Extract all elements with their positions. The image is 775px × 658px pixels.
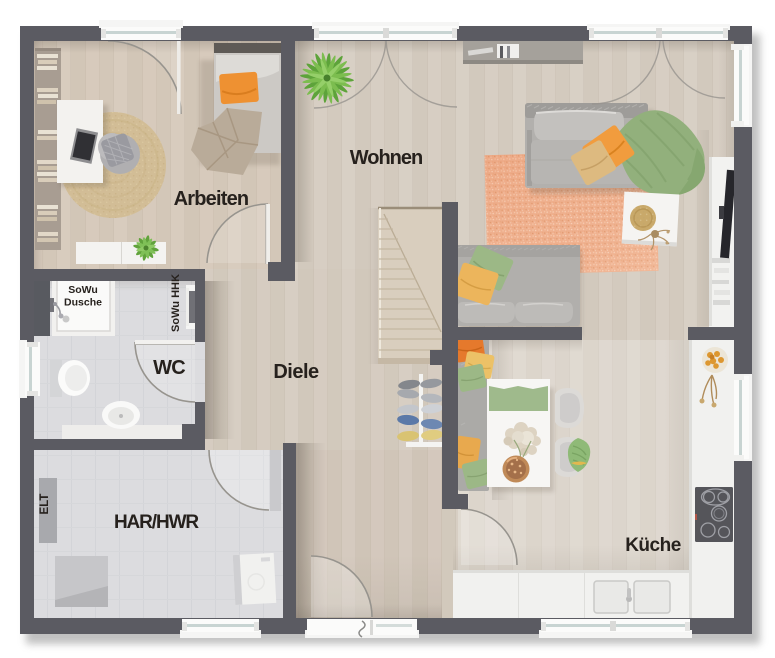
svg-text:Diele: Diele xyxy=(273,361,319,383)
svg-text:Küche: Küche xyxy=(625,535,681,556)
svg-text:SoWu HHK: SoWu HHK xyxy=(170,274,182,332)
svg-text:ELT: ELT xyxy=(39,494,51,515)
svg-text:Arbeiten: Arbeiten xyxy=(174,188,249,210)
svg-text:WC: WC xyxy=(153,357,185,379)
svg-text:Wohnen: Wohnen xyxy=(350,147,423,169)
svg-text:Dusche: Dusche xyxy=(64,297,102,309)
svg-text:SoWu: SoWu xyxy=(68,284,98,296)
svg-text:HAR/HWR: HAR/HWR xyxy=(114,512,199,533)
